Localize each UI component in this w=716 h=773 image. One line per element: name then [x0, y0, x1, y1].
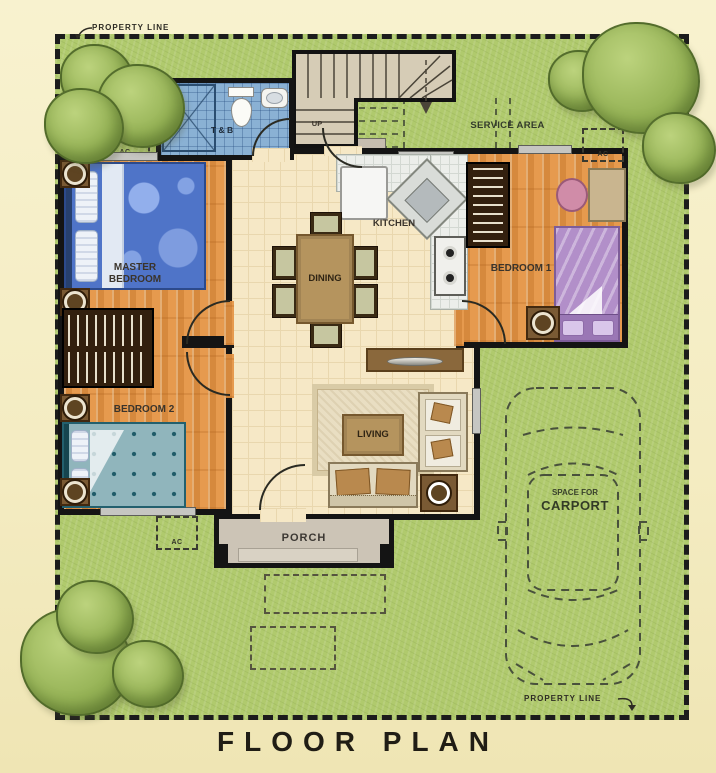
dining-chair: [310, 322, 342, 348]
table-lamp: [532, 312, 554, 334]
property-line-label-bottom: PROPERTY LINE: [524, 694, 601, 703]
porch-pier: [380, 544, 394, 568]
table-lamp: [64, 397, 86, 419]
service-area-label: SERVICE AREA: [450, 121, 565, 132]
tree: [642, 112, 716, 184]
bedroom1-closet: [466, 162, 510, 248]
living-side-table: [420, 474, 458, 512]
dining-chair: [352, 284, 378, 318]
walkway-stone: [250, 626, 336, 670]
dining-table: DINING: [296, 234, 354, 324]
loveseat: [418, 392, 468, 472]
nightstand: [60, 160, 90, 188]
toilet-tank: [228, 87, 254, 97]
bed-pillow: [562, 320, 584, 336]
bed-pillow: [71, 430, 89, 462]
bedroom1-bed: [554, 226, 620, 342]
sink-basin: [266, 92, 283, 104]
stove-burner: [443, 271, 457, 285]
window-bedroom1: [518, 145, 572, 154]
dining-chair: [310, 212, 342, 236]
carport-car-outline: [498, 380, 648, 692]
walkway-stone: [264, 574, 386, 614]
throw-pillow: [430, 402, 453, 424]
closet-slats: [473, 168, 503, 242]
floor-plan-canvas: SPACE FOR CARPORT AC AC AC UP: [0, 0, 716, 773]
stairs-up-label: UP: [302, 120, 332, 129]
window-bedroom2: [100, 507, 196, 516]
decor-dish: [387, 357, 443, 366]
sofa-base: [330, 495, 416, 506]
table-lamp: [64, 163, 86, 185]
sofa-cushion: [375, 468, 410, 496]
stairs-treads: [292, 50, 456, 148]
bedroom1-label: BEDROOM 1: [476, 263, 566, 275]
tree: [112, 640, 184, 708]
bed-pillow: [592, 320, 614, 336]
bed-blanket-fold: [90, 430, 124, 492]
master-bedroom-label-line1: MASTER: [70, 262, 200, 274]
dining-chair: [272, 284, 298, 318]
table-lamp: [64, 481, 86, 503]
sofa-cushion: [335, 468, 371, 496]
door-opening-front: [260, 508, 306, 522]
porch-label: PORCH: [244, 532, 364, 545]
console-table: [366, 348, 464, 372]
stove-burner: [443, 246, 457, 260]
bedroom1-side-table: [526, 306, 560, 340]
master-bedroom-label-line2: BEDROOM: [70, 274, 200, 286]
leader-arrow-icon: [74, 26, 94, 40]
carport-label-line2: CARPORT: [515, 499, 635, 514]
refrigerator: [340, 166, 388, 220]
toilet-bath-label: T & B: [200, 126, 244, 136]
closet-slats: [68, 352, 148, 383]
coffee-table: LIVING: [342, 414, 404, 456]
tree: [44, 88, 124, 164]
table-lamp: [428, 482, 450, 504]
tree: [56, 580, 134, 654]
ac-unit-bedroom1: AC: [582, 128, 624, 162]
ac-unit-bedroom2: AC: [156, 516, 198, 550]
window-living: [472, 388, 481, 434]
bedroom1-chair: [556, 178, 588, 212]
closet-slats: [68, 315, 148, 346]
kitchen-label: KITCHEN: [358, 219, 430, 230]
porch-pier: [214, 544, 228, 568]
bedroom2-label: BEDROOM 2: [84, 404, 204, 416]
sofa: [328, 462, 418, 508]
nightstand: [60, 478, 90, 506]
carport-label-line1: SPACE FOR: [515, 488, 635, 497]
dining-chair: [272, 246, 298, 280]
dining-chair: [352, 246, 378, 280]
porch-step: [238, 548, 358, 562]
sink-basin: [404, 178, 449, 223]
bedroom1-desk: [588, 168, 626, 222]
dining-label: DINING: [308, 274, 341, 285]
leader-arrow-icon: [616, 696, 638, 712]
property-line-label-top: PROPERTY LINE: [92, 23, 169, 32]
stove: [434, 236, 466, 296]
living-label: LIVING: [357, 430, 389, 441]
throw-pillow: [431, 438, 454, 459]
page-title: FLOOR PLAN: [0, 726, 716, 758]
master-closet: [62, 308, 154, 388]
